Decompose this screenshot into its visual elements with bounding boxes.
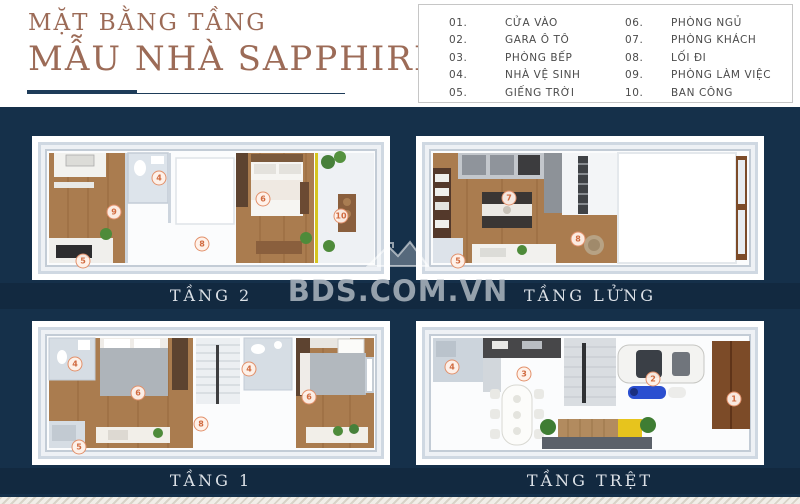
- room-marker-6: 6: [131, 386, 146, 401]
- room-marker-4: 4: [68, 357, 83, 372]
- bottom-pattern-strip: [0, 497, 800, 504]
- tang-tret-illustration: [422, 327, 758, 459]
- room-marker-8: 8: [194, 417, 209, 432]
- room-marker-5: 5: [76, 254, 91, 269]
- room-legend: 01.CỬA VÀO 02.GARA Ô TÔ 03.PHÒNG BẾP 04.…: [418, 4, 793, 103]
- room-marker-4: 4: [242, 362, 257, 377]
- page-title: MẶT BẰNG TẦNG MẪU NHÀ SAPPHIRE: [28, 8, 441, 80]
- room-marker-4: 4: [152, 171, 167, 186]
- room-marker-6: 6: [256, 192, 271, 207]
- tang-1-illustration: [38, 327, 384, 459]
- floor-label-tang-tret: TẦNG TRỆT: [416, 468, 764, 494]
- title-line1: MẶT BẰNG TẦNG: [28, 8, 441, 38]
- watermark: BDS.COM.VN: [283, 238, 513, 308]
- watermark-text: BDS.COM.VN: [283, 274, 513, 308]
- header: MẶT BẰNG TẦNG MẪU NHÀ SAPPHIRE 01.CỬA VÀ…: [0, 0, 800, 107]
- title-underline-thin: [27, 93, 345, 94]
- floor-label-tang-1: TẦNG 1: [32, 468, 390, 494]
- room-marker-7: 7: [502, 191, 517, 206]
- main-area: 9 4 8 5 6 10: [0, 107, 800, 497]
- legend-item: 08.LỐI ĐI: [625, 49, 792, 67]
- legend-item: 04.NHÀ VỆ SINH: [449, 67, 625, 85]
- legend-item: 01.CỬA VÀO: [449, 14, 625, 32]
- room-marker-4: 4: [445, 360, 460, 375]
- room-marker-3: 3: [517, 367, 532, 382]
- watermark-house-icon: [366, 238, 430, 268]
- legend-item: 02.GARA Ô TÔ: [449, 32, 625, 50]
- legend-item: 03.PHÒNG BẾP: [449, 49, 625, 67]
- legend-item: 06.PHÒNG NGỦ: [625, 14, 792, 32]
- room-marker-10: 10: [334, 209, 349, 224]
- legend-item: 07.PHÒNG KHÁCH: [625, 32, 792, 50]
- room-marker-5: 5: [72, 440, 87, 455]
- legend-column-1: 01.CỬA VÀO 02.GARA Ô TÔ 03.PHÒNG BẾP 04.…: [449, 14, 625, 102]
- legend-item: 10.BAN CÔNG: [625, 84, 792, 102]
- room-marker-8: 8: [571, 232, 586, 247]
- legend-item: 09.PHÒNG LÀM VIỆC: [625, 67, 792, 85]
- floorplan-tang-tret: 4 3 2 1: [416, 321, 764, 465]
- legend-item: 05.GIẾNG TRỜI: [449, 84, 625, 102]
- room-marker-1: 1: [727, 392, 742, 407]
- floorplan-poster: MẶT BẰNG TẦNG MẪU NHÀ SAPPHIRE 01.CỬA VÀ…: [0, 0, 800, 504]
- room-marker-8: 8: [195, 237, 210, 252]
- room-marker-2: 2: [646, 372, 661, 387]
- title-line2: MẪU NHÀ SAPPHIRE: [28, 38, 441, 80]
- room-marker-9: 9: [107, 205, 122, 220]
- floorplan-tang-1: 4 6 8 4 6 5: [32, 321, 390, 465]
- legend-column-2: 06.PHÒNG NGỦ 07.PHÒNG KHÁCH 08.LỐI ĐI 09…: [625, 14, 792, 102]
- room-marker-6: 6: [302, 390, 317, 405]
